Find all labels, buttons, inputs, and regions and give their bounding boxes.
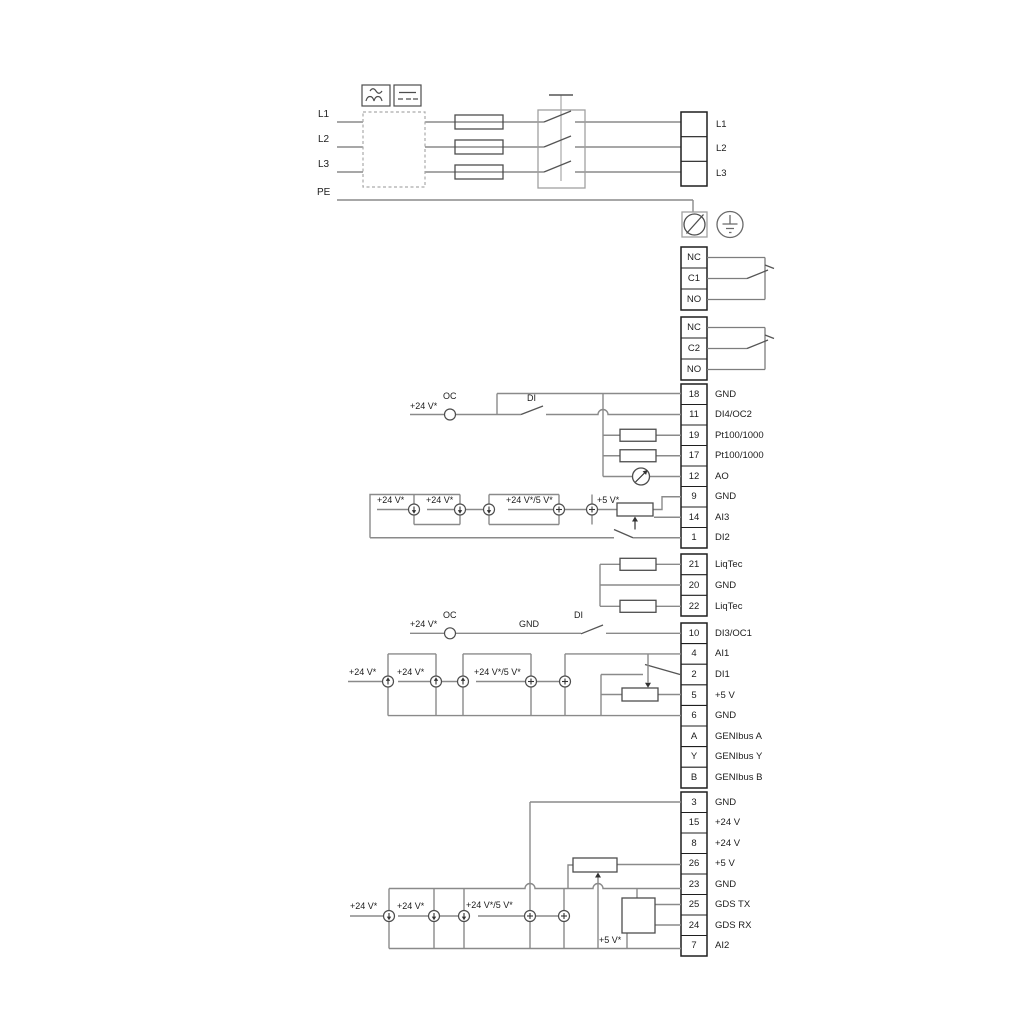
ac-symbol-icon <box>362 85 390 106</box>
terminal-row: 4AI1 <box>681 643 901 664</box>
supply-annotation: +24 V* <box>410 401 437 412</box>
terminal-row: NC <box>681 247 901 268</box>
terminal-label: L2 <box>716 143 727 154</box>
terminal-label: LiqTec <box>715 601 742 612</box>
terminal-number: 25 <box>681 899 707 910</box>
gds-sensor-box <box>622 898 655 933</box>
terminal-number: NC <box>681 252 707 263</box>
terminal-label: DI2 <box>715 532 730 543</box>
terminal-row: 20GND <box>681 575 901 596</box>
terminal-label: AI3 <box>715 512 729 523</box>
supply-annotation: +24 V*/5 V* <box>506 495 553 506</box>
filter-box <box>363 112 425 187</box>
terminal-row: 21LiqTec <box>681 554 901 575</box>
terminal-label: AO <box>715 471 729 482</box>
supply-annotation: +24 V*/5 V* <box>466 900 513 911</box>
resistor <box>620 600 656 612</box>
pt100-resistors <box>620 429 656 462</box>
terminal-number: 21 <box>681 559 707 570</box>
current-source-down-icon <box>455 504 466 515</box>
supply-annotation: +24 V* <box>349 667 376 678</box>
terminal-label: GND <box>715 389 736 400</box>
current-source-up-icon <box>431 676 442 687</box>
current-source-up-icon <box>383 676 394 687</box>
terminal-number: 4 <box>681 648 707 659</box>
terminal-label: GENIbus A <box>715 731 762 742</box>
terminal-label: +24 V <box>715 838 740 849</box>
terminal-row: YGENIbus Y <box>681 746 901 767</box>
terminal-label: +5 V <box>715 690 735 701</box>
supply-plus-icon <box>554 504 565 515</box>
resistor <box>620 558 656 570</box>
terminal-row: L2 <box>681 138 901 159</box>
power-wiring <box>337 122 693 212</box>
oc-annotation: OC <box>443 391 457 402</box>
supply-plus-icon <box>559 911 570 922</box>
terminal-number: 18 <box>681 389 707 400</box>
terminal-row: NO <box>681 359 901 380</box>
terminal-number: 24 <box>681 920 707 931</box>
terminal-label: L3 <box>716 168 727 179</box>
main-switch <box>538 95 585 188</box>
terminal-number: 15 <box>681 817 707 828</box>
terminal-label: +24 V <box>715 817 740 828</box>
terminal-row: 15+24 V <box>681 812 901 833</box>
current-source-down-icon <box>409 504 420 515</box>
supply-annotation: +24 V* <box>350 901 377 912</box>
terminal-number: 8 <box>681 838 707 849</box>
current-source-up-icon <box>458 676 469 687</box>
terminal-row: 26+5 V <box>681 853 901 874</box>
current-source-down-icon <box>429 911 440 922</box>
terminal-row: 1DI2 <box>681 527 901 548</box>
terminal-number: 14 <box>681 512 707 523</box>
terminal-label: GND <box>715 710 736 721</box>
terminal-number: C2 <box>681 343 707 354</box>
io3-wiring <box>350 802 681 949</box>
resistor <box>620 429 656 441</box>
oc-output-icon <box>445 409 456 420</box>
terminal-number: B <box>681 772 707 783</box>
terminal-label: GENIbus B <box>715 772 763 783</box>
ai1-potentiometer <box>622 683 658 701</box>
terminal-row: 22LiqTec <box>681 596 901 617</box>
terminal-number: 17 <box>681 450 707 461</box>
supply-annotation: +24 V*/5 V* <box>474 667 521 678</box>
terminal-row: NO <box>681 289 901 310</box>
terminal-label: +5 V <box>715 858 735 869</box>
supply-annotation: +24 V* <box>410 619 437 630</box>
ai3-potentiometer <box>617 503 653 530</box>
terminal-number: 20 <box>681 580 707 591</box>
terminal-label: GND <box>715 879 736 890</box>
terminal-row: NC <box>681 317 901 338</box>
terminal-row: AGENIbus A <box>681 726 901 747</box>
mains-label-l1: L1 <box>318 109 329 121</box>
di-annotation: DI <box>574 610 583 621</box>
gds-potentiometer <box>573 858 617 878</box>
supply-annotation: +24 V* <box>397 901 424 912</box>
io1-wiring <box>410 394 681 477</box>
terminal-row: 19Pt100/1000 <box>681 425 901 446</box>
terminal-row: 8+24 V <box>681 833 901 854</box>
terminal-label: AI1 <box>715 648 729 659</box>
terminal-number: 12 <box>681 471 707 482</box>
terminal-number: 22 <box>681 601 707 612</box>
terminal-label: LiqTec <box>715 559 742 570</box>
terminal-label: L1 <box>716 119 727 130</box>
terminal-number: 2 <box>681 669 707 680</box>
terminal-row: L1 <box>681 114 901 135</box>
terminal-number: 23 <box>681 879 707 890</box>
terminal-row: 7AI2 <box>681 935 901 956</box>
terminal-number: 6 <box>681 710 707 721</box>
terminal-row: 2DI1 <box>681 664 901 685</box>
terminal-row: 10DI3/OC1 <box>681 623 901 644</box>
current-source-down-icon <box>484 504 495 515</box>
supply-annotation: +24 V* <box>426 495 453 506</box>
terminal-number: NO <box>681 364 707 375</box>
supply-plus-icon <box>587 504 598 515</box>
earth-icon <box>717 212 743 238</box>
terminal-row: 5+5 V <box>681 685 901 706</box>
terminal-row: 9GND <box>681 486 901 507</box>
supply-annotation: +24 V* <box>377 495 404 506</box>
supply-annotation: +5 V* <box>597 495 619 506</box>
dc-symbol-icon <box>394 85 421 106</box>
terminal-row: 23GND <box>681 874 901 895</box>
terminal-row: 6GND <box>681 705 901 726</box>
mains-label-l3: L3 <box>318 159 329 171</box>
terminal-label: AI2 <box>715 940 729 951</box>
terminal-number: NO <box>681 294 707 305</box>
terminal-number: 5 <box>681 690 707 701</box>
pe-wire <box>337 200 693 212</box>
terminal-number: 11 <box>681 409 707 420</box>
oc-annotation: OC <box>443 610 457 621</box>
resistor <box>620 450 656 462</box>
terminal-label: GND <box>715 491 736 502</box>
terminal-number: 9 <box>681 491 707 502</box>
terminal-label: GENIbus Y <box>715 751 762 762</box>
current-source-down-icon <box>384 911 395 922</box>
terminal-row: 18GND <box>681 384 901 405</box>
terminal-row: C2 <box>681 338 901 359</box>
terminal-number: A <box>681 731 707 742</box>
terminal-number: NC <box>681 322 707 333</box>
wiring-diagram: L1 L2 L3 PE L1 L2 L3 NC C1 NO NC C2 NO 1… <box>0 0 1024 1024</box>
terminal-number: 1 <box>681 532 707 543</box>
terminal-row: 14AI3 <box>681 507 901 528</box>
terminal-label: DI4/OC2 <box>715 409 752 420</box>
oc-output-icon <box>445 628 456 639</box>
terminal-row: 17Pt100/1000 <box>681 445 901 466</box>
mains-label-l2: L2 <box>318 134 329 146</box>
terminal-number: 10 <box>681 628 707 639</box>
terminal-row: BGENIbus B <box>681 767 901 788</box>
terminal-number: Y <box>681 751 707 762</box>
terminal-label: DI1 <box>715 669 730 680</box>
terminal-label: GDS RX <box>715 920 751 931</box>
gnd-annotation: GND <box>519 619 539 630</box>
terminal-label: Pt100/1000 <box>715 450 764 461</box>
terminal-row: 25GDS TX <box>681 894 901 915</box>
terminal-row: 3GND <box>681 792 901 813</box>
supply-plus-icon <box>526 676 537 687</box>
terminal-row: L3 <box>681 163 901 184</box>
terminal-number: C1 <box>681 273 707 284</box>
terminal-row: 11DI4/OC2 <box>681 404 901 425</box>
cable-gland-icon <box>682 212 707 237</box>
di-annotation: DI <box>527 393 536 404</box>
supply-plus-icon <box>560 676 571 687</box>
terminal-row: 24GDS RX <box>681 915 901 936</box>
supply-annotation: +5 V* <box>599 935 621 946</box>
terminal-number: 3 <box>681 797 707 808</box>
analog-output-meter-icon <box>633 468 650 485</box>
terminal-number: 19 <box>681 430 707 441</box>
supply-plus-icon <box>525 911 536 922</box>
terminal-label: GND <box>715 797 736 808</box>
terminal-number: 7 <box>681 940 707 951</box>
terminal-label: DI3/OC1 <box>715 628 752 639</box>
terminal-row: 12AO <box>681 466 901 487</box>
terminal-row: C1 <box>681 268 901 289</box>
supply-annotation: +24 V* <box>397 667 424 678</box>
current-source-down-icon <box>459 911 470 922</box>
mains-label-pe: PE <box>317 187 330 199</box>
terminal-label: Pt100/1000 <box>715 430 764 441</box>
terminal-label: GDS TX <box>715 899 750 910</box>
terminal-label: GND <box>715 580 736 591</box>
terminal-number: 26 <box>681 858 707 869</box>
